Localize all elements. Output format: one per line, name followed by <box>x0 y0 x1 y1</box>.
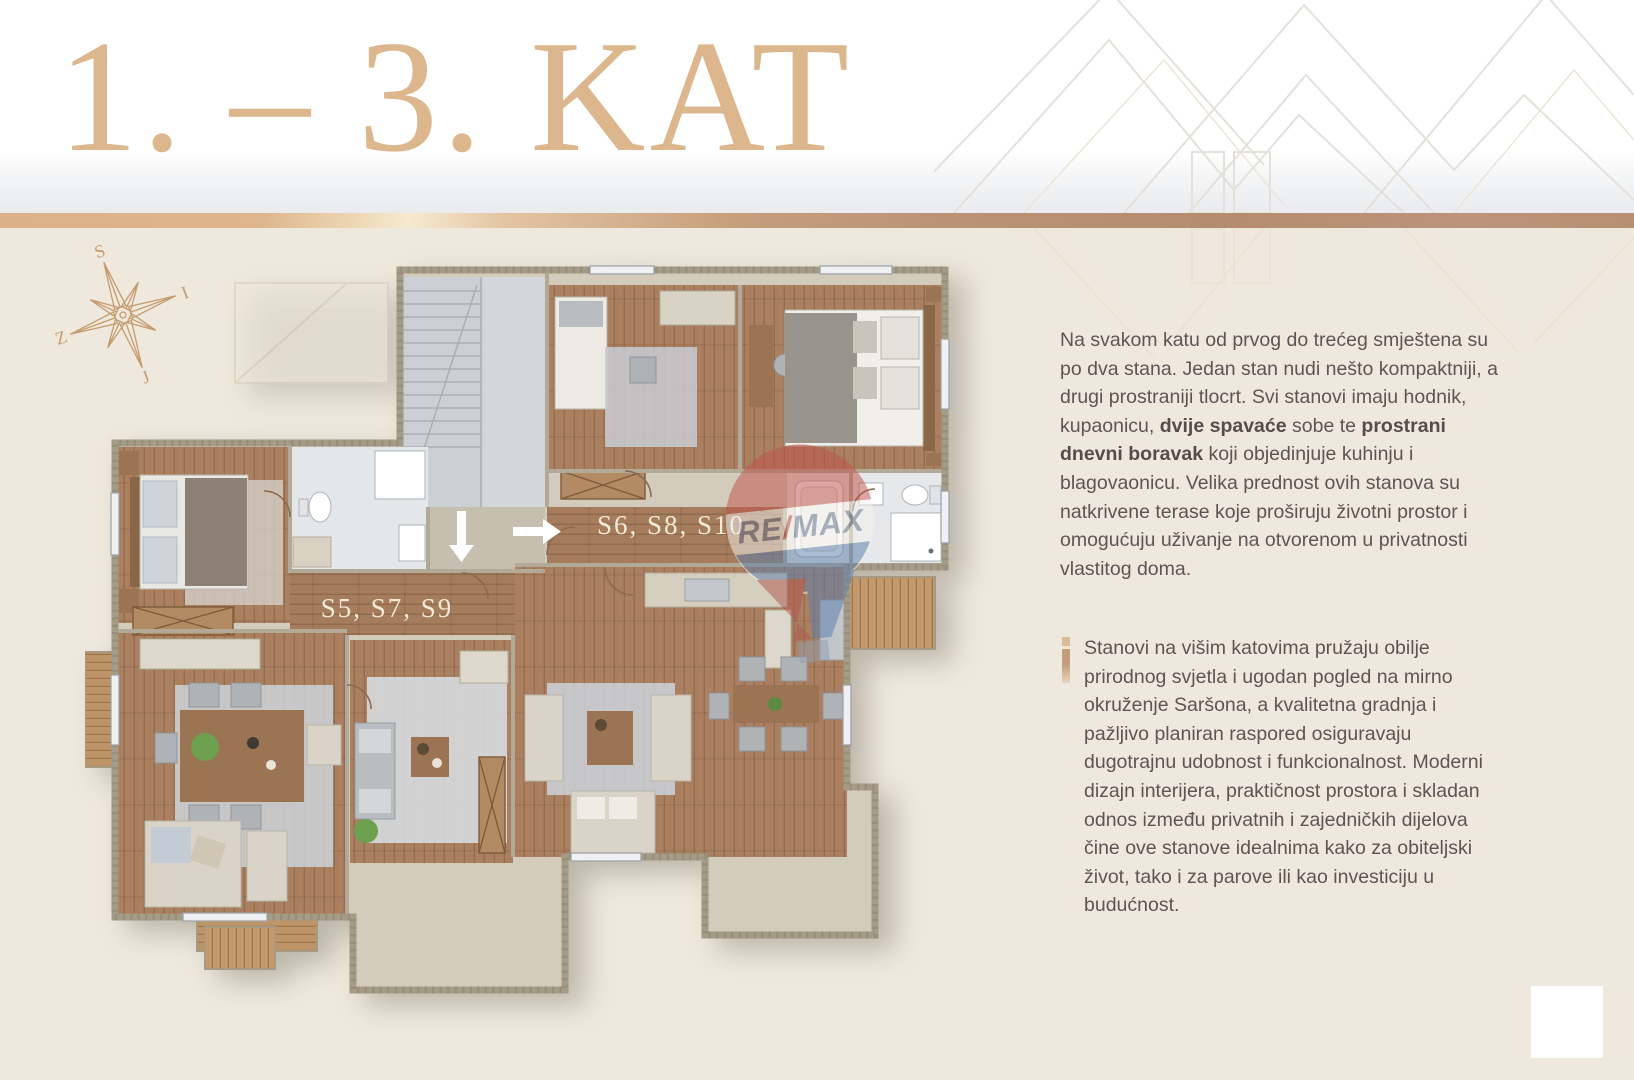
header-band: 1. – 3. KAT <box>0 0 1634 213</box>
plant-icon <box>191 733 219 761</box>
bedroom-a <box>547 285 739 471</box>
highlight-paragraph: Stanovi na višim katovima pružaju obilje… <box>1084 634 1492 920</box>
bedroom-b <box>742 285 945 471</box>
sofa <box>651 695 691 781</box>
left-unit-label: S5, S7, S9 <box>321 593 454 623</box>
deck-steps-south <box>205 927 275 969</box>
page-title: 1. – 3. KAT <box>58 4 853 189</box>
desk <box>749 325 773 407</box>
canopy-roof <box>235 283 388 383</box>
corner-page-marker <box>1531 986 1603 1058</box>
sofa <box>525 695 563 781</box>
toilet <box>902 485 928 505</box>
plant-icon <box>354 819 378 843</box>
right-unit-label: S6, S8, S10 <box>597 510 745 540</box>
bed-headboard <box>130 477 140 587</box>
remax-text-re: RE <box>735 511 784 551</box>
bathroom-left-unit <box>290 447 428 571</box>
kitchen-sink <box>685 579 729 601</box>
accent-bar <box>1062 637 1070 683</box>
bedroom-left-unit <box>115 447 290 623</box>
compass-west-label: Z <box>52 326 69 349</box>
coffee-table <box>587 711 633 765</box>
intro-paragraph: Na svakom katu od prvog do trećeg smješt… <box>1060 326 1508 583</box>
copper-divider-bar <box>0 213 1634 228</box>
floor-plan: S5, S7, S9 S6, S8, S10 RE/MAX <box>85 255 985 1000</box>
deck-east <box>847 577 935 649</box>
dining-room-left <box>115 633 347 917</box>
toilet <box>309 492 331 522</box>
rooflines-pattern-icon <box>934 0 1634 213</box>
highlight-block: Stanovi na višim katovima pružaju obilje… <box>1060 634 1492 920</box>
bed-headboard <box>923 305 935 451</box>
coffee-table <box>411 737 449 777</box>
sink <box>399 525 425 561</box>
